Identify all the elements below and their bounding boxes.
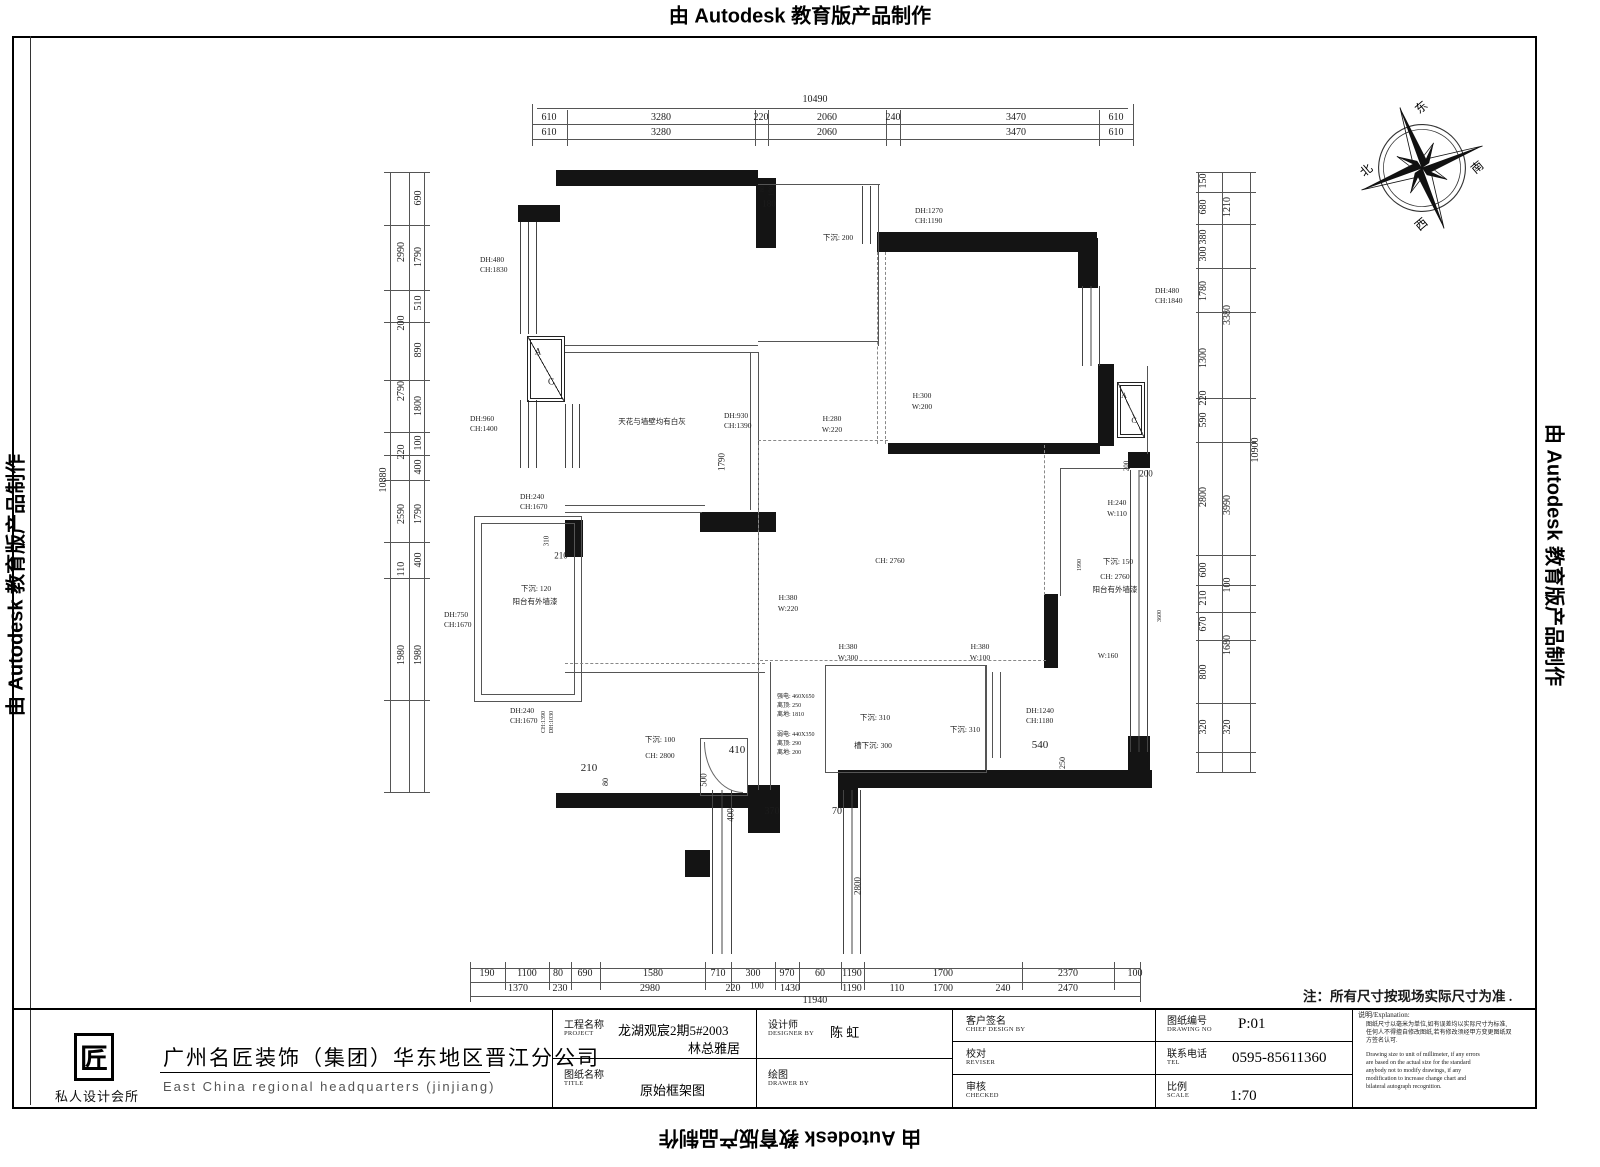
window xyxy=(862,186,879,244)
plan-label: 190 xyxy=(480,969,495,980)
plan-label: 1370 xyxy=(508,984,528,995)
plan-label: 1700 xyxy=(933,984,953,995)
plan-label: CH:1390 xyxy=(541,711,547,733)
plan-label: 220 xyxy=(754,113,769,124)
plan-label: DH:240 xyxy=(510,707,534,715)
plan-label: 2800 xyxy=(1199,487,1210,507)
designer-value: 陈 虹 xyxy=(830,1022,859,1041)
plan-label: 离地: 200 xyxy=(777,750,801,756)
tel-label: 联系电话 xyxy=(1167,1045,1207,1060)
plan-label: 2590 xyxy=(397,504,408,524)
plan-label: H:380 xyxy=(971,643,990,651)
plan-label: 3600 xyxy=(1157,610,1163,622)
plan-label: 220 xyxy=(726,984,741,995)
plan-label: 410 xyxy=(729,745,746,757)
plan-label: 3380 xyxy=(1223,305,1234,325)
plan-label: 80 xyxy=(760,186,766,192)
plan-label: 1980 xyxy=(414,645,425,665)
plan-label: 540 xyxy=(1032,740,1049,752)
plan-label: 10880 xyxy=(379,468,390,493)
checked-label: 审核 xyxy=(966,1078,986,1093)
tel-label-en: TEL xyxy=(1167,1059,1180,1066)
plan-label: 200 xyxy=(1123,461,1130,472)
plan-label: W:160 xyxy=(1098,652,1118,660)
plan-label: 320 xyxy=(1199,720,1210,735)
wall-segment xyxy=(1078,238,1098,288)
plan-label: 70 xyxy=(832,807,842,818)
plan-label: CH:1670 xyxy=(520,503,548,511)
plan-label: 300 xyxy=(1199,247,1210,262)
plan-label: 200 xyxy=(397,316,408,331)
plan-label: 2060 xyxy=(817,128,837,139)
plan-label: DH:1030 xyxy=(549,711,555,733)
plan-label: 680 xyxy=(1199,200,1210,215)
plan-label: 190 xyxy=(768,186,775,197)
plan-label: DH:750 xyxy=(444,611,468,619)
plan-label: 220 xyxy=(1199,391,1210,406)
plan-label: DH:930 xyxy=(724,412,748,420)
plan-label: 1800 xyxy=(414,396,425,416)
scale-label-en: SCALE xyxy=(1167,1092,1189,1099)
wall-segment xyxy=(700,512,776,532)
plan-label: 100 xyxy=(1223,578,1234,593)
plan-label: CH: 2760 xyxy=(1100,573,1129,581)
plan-label: CH:1180 xyxy=(1026,717,1053,725)
plan-label: 弱电: 440X350 xyxy=(777,732,815,738)
plan-label: CH:1670 xyxy=(444,621,472,629)
plan-label: 590 xyxy=(1199,413,1210,428)
plan-label: DH:480 xyxy=(480,256,504,264)
plan-label: 1990 xyxy=(1077,559,1083,571)
client-label-en: CHIEF DESIGN BY xyxy=(966,1026,1025,1033)
plan-label: 下沉: 200 xyxy=(823,234,853,242)
plan-label: CH:1830 xyxy=(480,266,508,274)
plan-label: 800 xyxy=(1199,665,1210,680)
plan-label: 2800 xyxy=(853,877,862,895)
plan-label: 1700 xyxy=(933,969,953,980)
company-tagline: 私人设计会所 xyxy=(55,1086,139,1105)
plan-label: CH:1190 xyxy=(915,217,942,225)
plan-label: 下沉: 310 xyxy=(860,714,890,722)
plan-label: 400 xyxy=(414,460,425,475)
company-name-cn: 广州名匠装饰（集团）华东地区晋江分公司 xyxy=(163,1042,600,1072)
plan-label: CH: 2800 xyxy=(645,752,674,760)
plan-label: 200 xyxy=(1139,469,1153,478)
wall-segment xyxy=(685,850,710,877)
plan-label: 60 xyxy=(815,969,825,980)
plan-label: 下沉: 100 xyxy=(645,736,675,744)
plan-label: 3280 xyxy=(651,113,671,124)
company-logo: 匠 xyxy=(74,1033,114,1081)
explanation-title: 说明/Explanation: xyxy=(1358,1011,1410,1020)
plan-label: 610 xyxy=(1109,113,1124,124)
plan-label: 2790 xyxy=(397,381,408,401)
plan-label: 强电: 460X650 xyxy=(777,694,815,700)
drawing-no-label-en: DRAWING NO xyxy=(1167,1026,1212,1033)
plan-label: CH:1390 xyxy=(724,422,752,430)
sheet-title-label-en: TITLE xyxy=(564,1080,584,1087)
plan-label: H:380 xyxy=(779,594,798,602)
plan-label: 300 xyxy=(746,969,761,980)
reviser-label: 校对 xyxy=(966,1045,986,1060)
plan-label: 510 xyxy=(414,296,425,311)
plan-label: 210 xyxy=(581,763,598,775)
plan-label: 1300 xyxy=(1199,348,1210,368)
plan-label: 10490 xyxy=(803,95,828,106)
project-value-line2: 林总雅居 xyxy=(688,1038,740,1057)
wall-segment xyxy=(518,205,560,222)
plan-label: 3470 xyxy=(1006,128,1026,139)
plan-label: 210 xyxy=(1199,591,1210,606)
plan-label: W:100 xyxy=(970,654,990,662)
plan-label: 600 xyxy=(1199,563,1210,578)
bath-outline xyxy=(825,665,987,773)
plan-label: 100 xyxy=(414,436,425,451)
plan-label: 11940 xyxy=(803,996,828,1007)
company-name-en: East China regional headquarters (jinjia… xyxy=(163,1079,495,1094)
plan-label: W:200 xyxy=(912,403,932,411)
explanation-text-cn: 图纸尺寸以毫米为单位,如有误差均以实际尺寸为标准,任何人不得擅自修改图纸,若有修… xyxy=(1366,1021,1512,1045)
dimension-note: 注：所有尺寸按现场实际尺寸为准 . xyxy=(1303,985,1512,1005)
plan-label: 380 xyxy=(1199,230,1210,245)
plan-label: 180 xyxy=(762,199,776,208)
plan-label: 2060 xyxy=(817,113,837,124)
wall-segment xyxy=(1098,364,1114,446)
plan-label: 80 xyxy=(553,969,563,980)
tel-value: 0595-85611360 xyxy=(1232,1050,1326,1067)
explanation-text-en: Drawing size to unit of millimeter, if a… xyxy=(1366,1051,1480,1091)
window xyxy=(520,400,537,468)
sheet-title-label: 图纸名称 xyxy=(564,1066,604,1081)
plan-label: 370 xyxy=(765,807,780,818)
drawer-label: 绘图 xyxy=(768,1066,788,1081)
wall-segment xyxy=(1044,594,1058,668)
plan-label: 1780 xyxy=(1199,281,1210,301)
plan-label: 250 xyxy=(1059,757,1067,769)
drawer-label-en: DRAWER BY xyxy=(768,1080,809,1087)
plan-label: 310 xyxy=(543,536,550,547)
plan-label: A xyxy=(1121,392,1127,400)
plan-label: H:380 xyxy=(839,643,858,651)
checked-label-en: CHECKED xyxy=(966,1092,999,1099)
plan-label: 710 xyxy=(711,969,726,980)
plan-label: 670 xyxy=(1199,617,1210,632)
plan-label: 1190 xyxy=(842,969,862,980)
plan-label: 下沉: 120 xyxy=(521,585,551,593)
plan-label: 610 xyxy=(542,113,557,124)
plan-label: 天花与墙壁均有白灰 xyxy=(618,418,686,426)
plan-label: 610 xyxy=(542,128,557,139)
plan-label: 下沉: 310 xyxy=(950,726,980,734)
plan-label: 1430 xyxy=(780,984,800,995)
window xyxy=(1082,286,1100,366)
plan-label: 阳台有外墙漆 xyxy=(1093,586,1138,594)
plan-label: 1580 xyxy=(643,969,663,980)
plan-label: C xyxy=(548,377,554,386)
plan-label: 690 xyxy=(414,191,425,206)
plan-label: 500 xyxy=(699,773,708,787)
drawing-no-value: P:01 xyxy=(1238,1016,1266,1033)
project-label-en: PROJECT xyxy=(564,1030,594,1037)
scale-value: 1:70 xyxy=(1230,1088,1257,1105)
plan-label: 2370 xyxy=(1058,969,1078,980)
plan-label: 1680 xyxy=(1223,635,1234,655)
client-label: 客户签名 xyxy=(966,1012,1006,1027)
plan-label: 2990 xyxy=(397,242,408,262)
plan-label: W:220 xyxy=(822,426,842,434)
plan-label: 240 xyxy=(996,984,1011,995)
plan-label: 2470 xyxy=(1058,984,1078,995)
plan-label: 槽下沉: 300 xyxy=(854,742,892,750)
plan-label: 离顶: 290 xyxy=(777,741,801,747)
plan-label: CH: 2760 xyxy=(875,557,904,565)
plan-label: 690 xyxy=(578,969,593,980)
plan-label: CH:1840 xyxy=(1155,297,1183,305)
plan-label: 下沉: 150 xyxy=(1103,558,1133,566)
plan-label: H:300 xyxy=(913,392,932,400)
plan-label: 离地: 1810 xyxy=(777,712,804,718)
plan-label: 210 xyxy=(554,551,568,560)
plan-label: 110 xyxy=(890,984,905,995)
wall-segment xyxy=(556,170,758,186)
plan-label: 1980 xyxy=(397,645,408,665)
plan-label: 10900 xyxy=(1251,438,1262,463)
window xyxy=(565,404,580,468)
plan-label: W:300 xyxy=(838,654,858,662)
sheet-title-value: 原始框架图 xyxy=(640,1080,705,1099)
plan-label: 1190 xyxy=(842,984,862,995)
plan-label: DH:960 xyxy=(470,415,494,423)
plan-label: W:110 xyxy=(1107,510,1127,518)
plan-label: DH:240 xyxy=(520,493,544,501)
reviser-label-en: REVISER xyxy=(966,1059,995,1066)
plan-label: 100 xyxy=(1128,969,1143,980)
plan-label: 230 xyxy=(553,984,568,995)
wall-hatch xyxy=(843,790,861,954)
plan-label: W:220 xyxy=(778,605,798,613)
plan-label: DH:480 xyxy=(1155,287,1179,295)
plan-label: 110 xyxy=(397,562,408,577)
designer-label-en: DESIGNER BY xyxy=(768,1030,814,1037)
plan-label: 100 xyxy=(750,981,764,990)
plan-label: 离顶: 250 xyxy=(777,703,801,709)
plan-label: 400 xyxy=(414,553,425,568)
plan-label: 150 xyxy=(1199,174,1210,189)
plan-label: 220 xyxy=(397,445,408,460)
plan-label: 610 xyxy=(1109,128,1124,139)
drawing-sheet: { "banner": {"text": "由 Autodesk 教育版产品制作… xyxy=(0,0,1600,1167)
plan-label: A xyxy=(535,347,542,356)
project-label: 工程名称 xyxy=(564,1016,604,1031)
plan-label: CH:1400 xyxy=(470,425,498,433)
plan-label: 3280 xyxy=(651,128,671,139)
balcony-outline xyxy=(481,523,575,695)
window xyxy=(520,222,537,334)
plan-label: 阳台有外墙漆 xyxy=(513,598,558,606)
plan-label: C xyxy=(1131,417,1136,425)
plan-label: DH:1270 xyxy=(915,207,943,215)
designer-label: 设计师 xyxy=(768,1016,798,1031)
plan-label: 3470 xyxy=(1006,113,1026,124)
plan-label: 2980 xyxy=(640,984,660,995)
plan-label: 3990 xyxy=(1223,495,1234,515)
plan-label: 1790 xyxy=(717,453,726,471)
plan-label: 1790 xyxy=(414,247,425,267)
drawing-no-label: 图纸编号 xyxy=(1167,1012,1207,1027)
wall-segment xyxy=(877,232,1097,252)
plan-label: 80 xyxy=(602,778,610,786)
wall-segment xyxy=(1128,452,1150,468)
plan-label: CH:1670 xyxy=(510,717,538,725)
plan-label: 240 xyxy=(886,113,901,124)
plan-label: 400 xyxy=(726,808,735,822)
project-value-line1: 龙湖观宸2期5#2003 xyxy=(618,1020,729,1039)
plan-label: 890 xyxy=(414,343,425,358)
plan-label: 1100 xyxy=(517,969,537,980)
ac-unit xyxy=(527,336,565,402)
window xyxy=(1130,470,1148,752)
plan-label: 1790 xyxy=(414,504,425,524)
plan-label: DH:1240 xyxy=(1026,707,1054,715)
plan-label: H:240 xyxy=(1108,499,1127,507)
scale-label: 比例 xyxy=(1167,1078,1187,1093)
plan-label: 1210 xyxy=(1223,197,1234,217)
plan-label: 320 xyxy=(1223,720,1234,735)
wall-segment xyxy=(888,443,1100,454)
plan-label: 970 xyxy=(780,969,795,980)
plan-label: H:280 xyxy=(823,415,842,423)
